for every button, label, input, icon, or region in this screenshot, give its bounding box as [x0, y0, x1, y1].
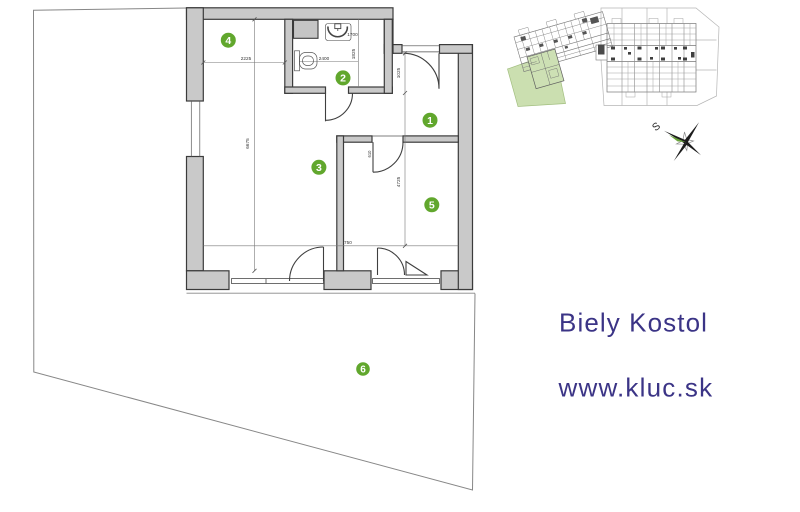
svg-text:Biely Kostol: Biely Kostol: [559, 308, 708, 338]
svg-text:1825: 1825: [351, 48, 356, 59]
svg-text:2400: 2400: [319, 56, 330, 61]
svg-text:1025: 1025: [396, 67, 401, 78]
svg-text:6: 6: [360, 365, 366, 376]
svg-text:www.kluc.sk: www.kluc.sk: [558, 372, 714, 402]
svg-text:6675: 6675: [245, 138, 250, 149]
svg-text:3: 3: [316, 162, 322, 174]
svg-text:5: 5: [429, 200, 435, 212]
svg-text:610: 610: [367, 150, 372, 158]
svg-text:1: 1: [427, 115, 433, 127]
svg-text:4: 4: [225, 35, 231, 47]
svg-text:2225: 2225: [241, 56, 252, 61]
svg-text:4725: 4725: [396, 176, 401, 187]
svg-text:1700: 1700: [347, 32, 358, 37]
svg-text:750: 750: [344, 240, 352, 245]
svg-text:2: 2: [340, 73, 346, 85]
svg-text:S: S: [650, 120, 663, 134]
